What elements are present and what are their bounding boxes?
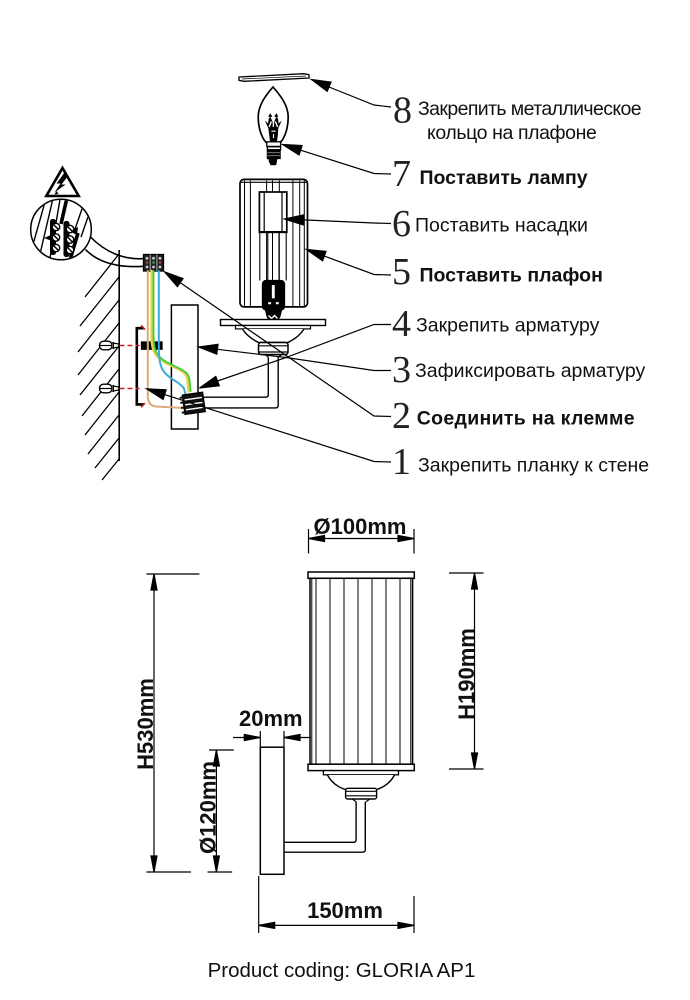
svg-text:20mm: 20mm [239,706,303,731]
svg-text:4: 4 [392,303,411,345]
svg-text:Ø100mm: Ø100mm [314,514,407,539]
svg-text:1: 1 [392,441,411,483]
svg-text:Закрепить металлическое: Закрепить металлическое [418,98,641,120]
svg-text:Поставить лампу: Поставить лампу [420,167,588,189]
svg-text:Product coding: GLORIA AP1: Product coding: GLORIA AP1 [208,959,476,982]
svg-text:H190mm: H190mm [454,628,479,720]
svg-text:2: 2 [392,395,411,437]
svg-text:Зафиксировать арматуру: Зафиксировать арматуру [415,360,646,382]
svg-text:6: 6 [392,203,411,245]
svg-text:8: 8 [393,90,412,132]
svg-text:5: 5 [392,251,411,293]
svg-text:Поставить плафон: Поставить плафон [420,265,603,287]
svg-text:кольцо на плафоне: кольцо на плафоне [427,122,596,144]
svg-text:Поставить насадки: Поставить насадки [415,215,588,237]
svg-text:150mm: 150mm [307,898,383,923]
svg-text:Соединить на клемме: Соединить на клемме [417,408,635,430]
svg-text:3: 3 [392,349,411,391]
svg-text:7: 7 [392,153,411,195]
svg-text:Закрепить арматуру: Закрепить арматуру [416,315,600,337]
svg-text:Закрепить планку к стене: Закрепить планку к стене [418,455,649,477]
